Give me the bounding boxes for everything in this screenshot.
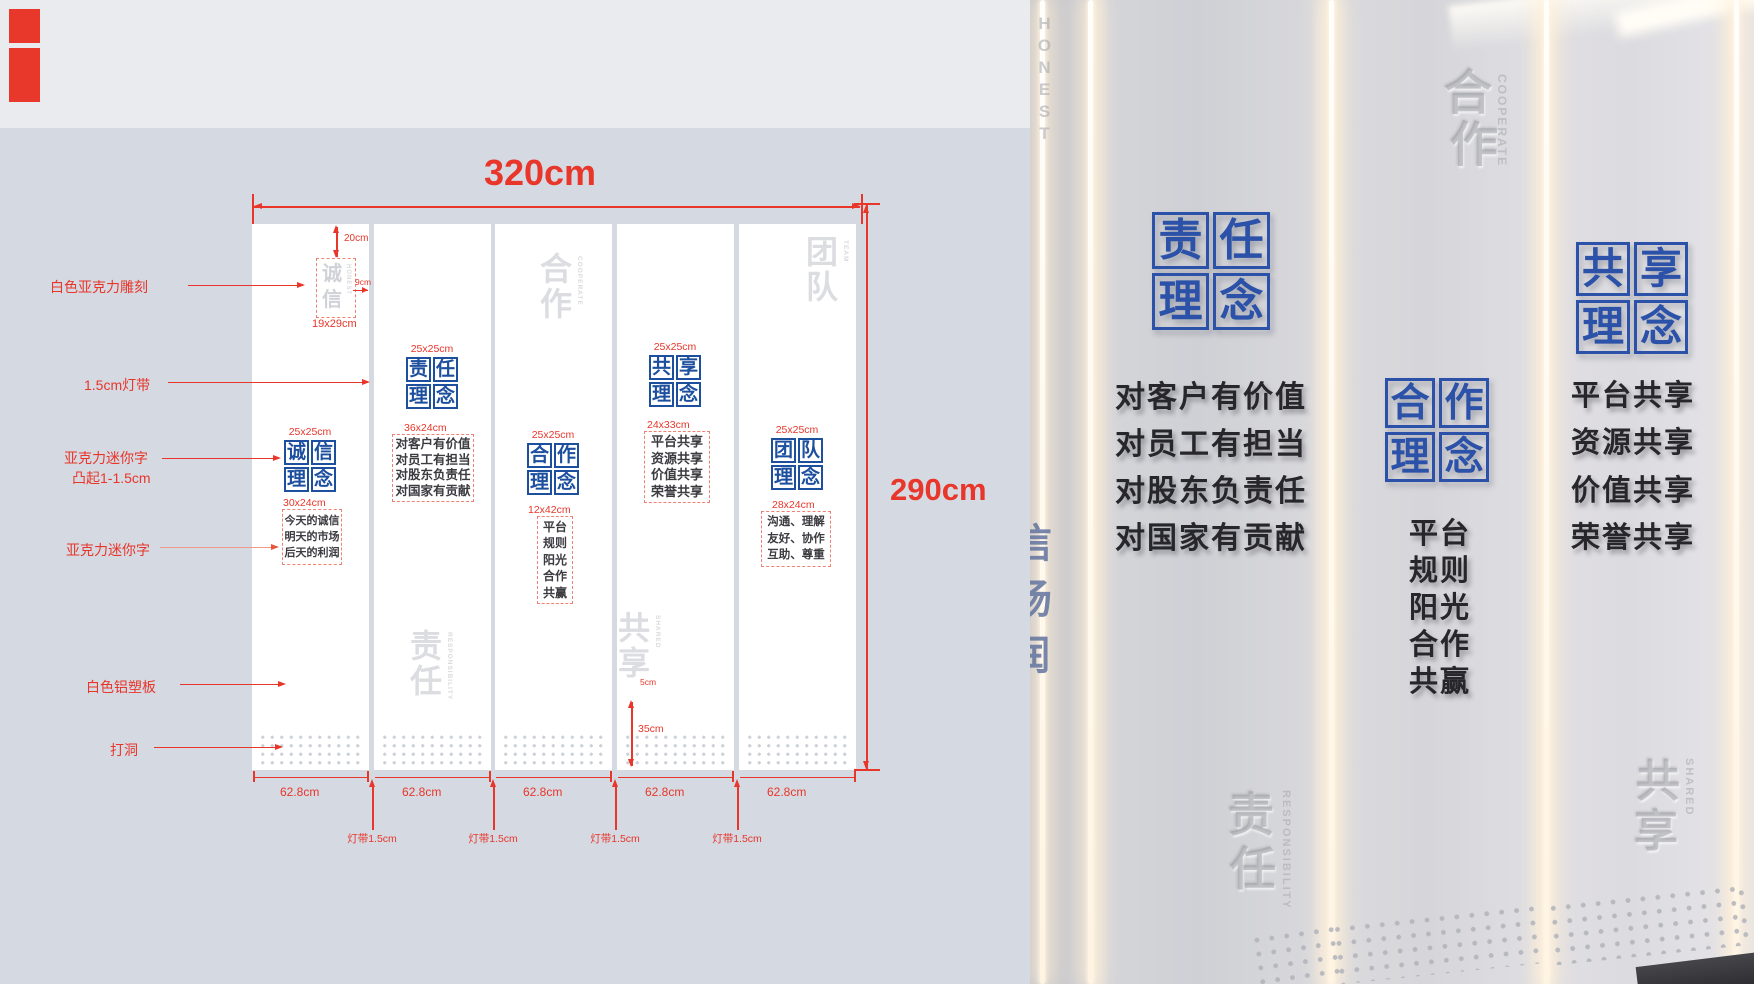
mini-text-line: 合作 xyxy=(538,568,572,585)
mini-text-line: 后天的利润 xyxy=(283,545,341,561)
photo-dots xyxy=(1249,922,1342,984)
panel-width-label: 62.8cm xyxy=(767,785,806,799)
panel-width-label: 62.8cm xyxy=(645,785,684,799)
height-dimension-line xyxy=(866,205,868,769)
logo-cell: 团 xyxy=(771,438,796,463)
panel-dim-line xyxy=(496,777,611,778)
mini-text-line: 对国家有贡献 xyxy=(393,484,473,500)
led-strip xyxy=(1088,0,1093,984)
mini-text-line: 共赢 xyxy=(538,585,572,602)
logo-cell: 理 xyxy=(1576,300,1630,354)
led-strip xyxy=(1544,0,1549,984)
gap-arrow-line xyxy=(737,784,739,830)
logo-cell: 念 xyxy=(554,470,579,495)
arrow-up-icon xyxy=(863,205,869,213)
punch-holes xyxy=(623,733,727,765)
logo-size-label: 25x25cm xyxy=(523,429,583,441)
watermark-en: COOPERATE xyxy=(576,256,583,336)
panel-width-label: 62.8cm xyxy=(280,785,319,799)
logo-cell: 享 xyxy=(676,355,701,380)
watermark-en: RESPONSIBILITY xyxy=(446,632,453,712)
engrave-char-2: 信 xyxy=(317,288,347,312)
clipped-char-fragment: 信 xyxy=(1030,524,1052,564)
watermark-en: COOPERATE xyxy=(1495,74,1509,204)
concept-logo-team: 团队理念 xyxy=(771,438,823,490)
panel-width-label: 62.8cm xyxy=(402,785,441,799)
panel-dim-line xyxy=(618,777,733,778)
arrow-right-icon xyxy=(362,379,370,385)
logo-cell: 任 xyxy=(1213,212,1270,269)
logo-cell: 念 xyxy=(311,467,336,492)
annotation-line xyxy=(162,458,279,459)
photo-area: HONEST 信 场 润 责任理念 对客户有价值 对员工有担当 对股东负责任 对… xyxy=(1030,0,1754,984)
annotation-mini: 亚克力迷你字 xyxy=(66,540,150,560)
arrow-down-icon xyxy=(863,761,869,769)
watermark-char: 合 xyxy=(1444,70,1492,118)
arrow-right-icon xyxy=(275,744,283,750)
arrow-right-icon xyxy=(362,287,368,293)
logo-cell: 诚 xyxy=(284,440,309,465)
wall-text-line: 对员工有担当 xyxy=(1115,419,1305,463)
concept-logo-cooperation: 合作理念 xyxy=(527,443,579,495)
culture-wall-design-sheet: 320cm 290cm 白色亚克力雕刻 1.5cm灯带 亚克力迷你字 凸起1-1… xyxy=(0,0,1754,984)
watermark-en: RESPONSIBILITY xyxy=(1280,790,1292,905)
annotation-line xyxy=(188,285,303,286)
logo-cell: 任 xyxy=(433,357,458,382)
logo-cell: 念 xyxy=(798,465,823,490)
corner-red-mark xyxy=(9,48,40,102)
punch-holes xyxy=(380,733,484,765)
panel-dim-line xyxy=(375,777,490,778)
annotation-board: 白色铝塑板 xyxy=(86,677,156,697)
mini-text-line: 明天的市场 xyxy=(283,529,341,545)
mini-text-line: 荣誉共享 xyxy=(645,484,709,501)
punch-holes xyxy=(745,733,849,765)
punch-holes xyxy=(258,733,362,765)
annotation-line xyxy=(168,382,368,383)
mini-text-line: 对客户有价值 xyxy=(393,437,473,453)
diagram-top-band xyxy=(0,0,1030,128)
logo-cell: 共 xyxy=(649,355,674,380)
mini-text-line: 今天的诚信 xyxy=(283,513,341,529)
text-size-label: 36x24cm xyxy=(404,422,447,434)
watermark-char: 合 xyxy=(538,253,574,285)
panel-dim-line xyxy=(253,777,368,778)
text-size-label: 28x24cm xyxy=(772,499,815,511)
logo-cell: 合 xyxy=(527,443,552,468)
mini-text-line: 资源共享 xyxy=(645,451,709,468)
engrave-side-label: 9cm xyxy=(355,277,371,287)
gap-arrow-line xyxy=(615,784,617,830)
text-size-label: 24x33cm xyxy=(647,419,690,431)
watermark-en: SHARED xyxy=(654,615,661,685)
logo-cell: 理 xyxy=(527,470,552,495)
led-strip xyxy=(1329,0,1334,984)
logo-cell: 队 xyxy=(798,438,823,463)
dim-5cm-label: 5cm xyxy=(640,677,656,687)
logo-cell: 念 xyxy=(1439,432,1489,482)
annotation-engrave: 白色亚克力雕刻 xyxy=(50,277,148,297)
mini-text-line: 阳光 xyxy=(538,552,572,569)
panel-dim-line xyxy=(740,777,855,778)
watermark-char: 享 xyxy=(1634,810,1678,854)
diagram-area: 320cm 290cm 白色亚克力雕刻 1.5cm灯带 亚克力迷你字 凸起1-1… xyxy=(0,0,1030,984)
mini-text-line: 对员工有担当 xyxy=(393,453,473,469)
watermark-char: 团 xyxy=(804,236,840,268)
wall-text-line: 平台 xyxy=(1390,510,1490,552)
arrow-up-icon xyxy=(369,779,375,787)
wall-text-line: 对国家有贡献 xyxy=(1115,513,1305,557)
logo-size-label: 25x25cm xyxy=(280,426,340,438)
photo-logo-responsibility: 责任理念 xyxy=(1152,212,1270,330)
mini-text-block: 平台 规则 阳光 合作 共赢 xyxy=(537,516,573,604)
logo-cell: 念 xyxy=(1634,300,1688,354)
wall-text-line: 共赢 xyxy=(1390,658,1490,700)
honest-watermark: HONEST xyxy=(1034,14,1054,146)
mini-text-line: 规则 xyxy=(538,535,572,552)
logo-size-label: 25x25cm xyxy=(402,343,462,355)
panel-width-label: 62.8cm xyxy=(523,785,562,799)
watermark-en: SHARED xyxy=(1683,758,1695,848)
dim-35cm-label: 35cm xyxy=(638,723,664,735)
gap-label: 灯带1.5cm xyxy=(342,831,402,846)
photo-panel-3 xyxy=(1330,0,1545,984)
watermark-char: 任 xyxy=(1230,846,1276,892)
logo-cell: 理 xyxy=(771,465,796,490)
concept-logo-sharing: 共享理念 xyxy=(649,355,701,407)
engrave-size-label: 19x29cm xyxy=(312,318,357,330)
engrave-en-watermark: HONEST xyxy=(345,264,351,312)
logo-cell: 作 xyxy=(554,443,579,468)
text-size-label: 12x42cm xyxy=(528,504,571,516)
dim-tick xyxy=(253,771,255,782)
arrow-up-icon xyxy=(612,779,618,787)
arrow-up-icon xyxy=(734,779,740,787)
logo-cell: 责 xyxy=(1152,212,1209,269)
photo-logo-sharing: 共享理念 xyxy=(1576,242,1688,354)
mini-text-block: 沟通、理解 友好、协作 互助、尊重 xyxy=(761,511,831,567)
photo-logo-cooperation: 合作理念 xyxy=(1385,378,1489,482)
logo-cell: 理 xyxy=(406,384,431,409)
engrave-char-1: 诚 xyxy=(317,262,347,286)
logo-cell: 念 xyxy=(433,384,458,409)
wall-text-line: 资源共享 xyxy=(1553,419,1713,461)
engrave-box: 诚 信 HONEST xyxy=(316,258,356,318)
watermark-char: 任 xyxy=(408,665,444,697)
width-dimension-line xyxy=(254,206,860,208)
arrow-up-icon xyxy=(490,779,496,787)
arrow-up-icon xyxy=(628,700,634,708)
led-strip xyxy=(1040,0,1045,984)
logo-cell: 理 xyxy=(649,382,674,407)
watermark-char: 责 xyxy=(1228,792,1274,838)
mini-text-line: 平台 xyxy=(538,519,572,536)
watermark-char: 共 xyxy=(1636,760,1680,804)
arrow-right-icon xyxy=(297,282,305,288)
arrow-right-icon xyxy=(271,544,279,550)
mini-text-line: 沟通、理解 xyxy=(762,514,830,531)
wall-text-line: 合作 xyxy=(1390,621,1490,663)
clipped-char-fragment: 场 xyxy=(1030,580,1052,620)
arrow-right-icon xyxy=(273,455,281,461)
logo-cell: 信 xyxy=(311,440,336,465)
height-dimension-label: 290cm xyxy=(890,472,987,508)
watermark-en: TEAM xyxy=(842,240,849,300)
corner-red-mark xyxy=(9,9,40,43)
logo-size-label: 25x25cm xyxy=(645,341,705,353)
arrow-up-icon xyxy=(333,225,339,233)
concept-logo-responsibility: 责任理念 xyxy=(406,357,458,409)
watermark-char: 享 xyxy=(616,647,652,679)
logo-cell: 念 xyxy=(1213,273,1270,330)
arrow-down-icon xyxy=(333,250,339,258)
watermark-char: 共 xyxy=(616,612,652,644)
offset-dim-label: 20cm xyxy=(344,233,368,244)
annotation-holes: 打洞 xyxy=(110,740,138,760)
dim-35cm-line xyxy=(631,702,633,766)
mini-text-line: 价值共享 xyxy=(645,467,709,484)
gap-label: 灯带1.5cm xyxy=(463,831,523,846)
wall-text-line: 平台共享 xyxy=(1553,372,1713,414)
photo-panel-1 xyxy=(1030,0,1090,984)
wall-text-line: 对股东负责任 xyxy=(1115,466,1305,510)
wall-text-line: 价值共享 xyxy=(1553,467,1713,509)
logo-cell: 责 xyxy=(406,357,431,382)
watermark-char: 作 xyxy=(538,288,574,320)
watermark-char: 责 xyxy=(408,630,444,662)
logo-size-label: 25x25cm xyxy=(767,424,827,436)
wall-text-line: 荣誉共享 xyxy=(1553,514,1713,556)
logo-cell: 享 xyxy=(1634,242,1688,296)
annotation-led: 1.5cm灯带 xyxy=(84,375,150,395)
mini-text-block: 对客户有价值 对员工有担当 对股东负责任 对国家有贡献 xyxy=(392,434,474,502)
gap-label: 灯带1.5cm xyxy=(585,831,645,846)
mini-text-line: 平台共享 xyxy=(645,434,709,451)
gap-arrow-line xyxy=(493,784,495,830)
mini-text-line: 互助、尊重 xyxy=(762,547,830,564)
logo-cell: 念 xyxy=(676,382,701,407)
logo-cell: 共 xyxy=(1576,242,1630,296)
annotation-mini-raised-2: 凸起1-1.5cm xyxy=(72,468,151,488)
arrow-left-icon xyxy=(254,203,262,209)
logo-cell: 理 xyxy=(1152,273,1209,330)
arrow-down-icon xyxy=(628,759,634,767)
mini-text-block: 平台共享 资源共享 价值共享 荣誉共享 xyxy=(644,431,710,503)
annotation-line xyxy=(160,547,277,548)
wall-text-line: 对客户有价值 xyxy=(1115,372,1305,416)
mini-text-block: 今天的诚信 明天的市场 后天的利润 xyxy=(282,509,342,565)
logo-cell: 合 xyxy=(1385,378,1435,428)
wall-panel-5 xyxy=(739,224,856,770)
dim-tick xyxy=(854,769,880,771)
mini-text-line: 对股东负责任 xyxy=(393,468,473,484)
text-size-label: 30x24cm xyxy=(283,497,326,509)
logo-cell: 理 xyxy=(1385,432,1435,482)
wall-text-line: 阳光 xyxy=(1390,584,1490,626)
concept-logo-honesty: 诚信理念 xyxy=(284,440,336,492)
annotation-line xyxy=(180,684,284,685)
clipped-char-fragment: 润 xyxy=(1030,636,1050,676)
wall-text-line: 规则 xyxy=(1390,547,1490,589)
gap-label: 灯带1.5cm xyxy=(707,831,767,846)
logo-cell: 理 xyxy=(284,467,309,492)
dim-tick xyxy=(854,771,856,782)
punch-holes xyxy=(501,733,605,765)
width-dimension-label: 320cm xyxy=(455,152,625,194)
watermark-char: 作 xyxy=(1450,122,1498,170)
annotation-line xyxy=(154,747,281,748)
mini-text-line: 友好、协作 xyxy=(762,531,830,548)
dim-tick xyxy=(252,194,254,224)
led-strip xyxy=(1734,0,1739,984)
annotation-mini-raised: 亚克力迷你字 xyxy=(64,448,148,468)
arrow-right-icon xyxy=(278,681,286,687)
gap-arrow-line xyxy=(372,784,374,830)
logo-cell: 作 xyxy=(1439,378,1489,428)
watermark-char: 队 xyxy=(804,271,840,303)
